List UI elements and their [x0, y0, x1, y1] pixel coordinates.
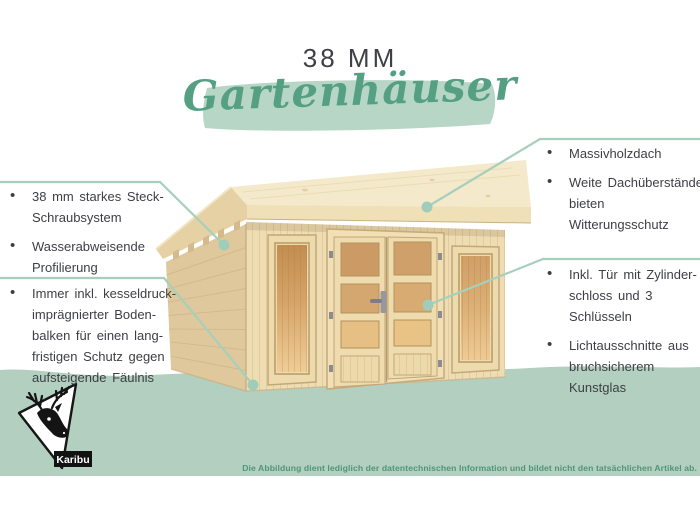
garden-house-illustration: [156, 160, 531, 391]
feature-list: 38 mm starkes Steck- Schraubsystem Wasse…: [8, 186, 180, 278]
callout-right-bottom: Inkl. Tür mit Zylinder- schloss und 3 Sc…: [545, 264, 700, 406]
callout-left-top: 38 mm starkes Steck- Schraubsystem Wasse…: [8, 186, 180, 286]
brand-label: Karibu: [56, 454, 89, 466]
feature-item: Lichtausschnitte aus bruchsicherem Kunst…: [545, 335, 700, 398]
feature-item: Inkl. Tür mit Zylinder- schloss und 3 Sc…: [545, 264, 700, 327]
feature-item: Massivholzdach: [545, 143, 700, 164]
callout-right-top: Massivholzdach Weite Dachüberstände biet…: [545, 143, 700, 243]
feature-item: Wasserabweisende Profilierung: [8, 236, 180, 278]
left-window: [268, 235, 316, 385]
feature-list: Immer inkl. kesseldruck- imprägnierter B…: [8, 283, 190, 388]
right-window: [452, 246, 499, 373]
feature-item: Weite Dachüberstände bieten Witterungssc…: [545, 172, 700, 235]
disclaimer-text: Die Abbildung dient lediglich der datent…: [242, 463, 697, 473]
feature-list: Massivholzdach Weite Dachüberstände biet…: [545, 143, 700, 235]
callout-left-bottom: Immer inkl. kesseldruck- imprägnierter B…: [8, 283, 190, 396]
feature-item: 38 mm starkes Steck- Schraubsystem: [8, 186, 180, 228]
feature-item: Immer inkl. kesseldruck- imprägnierter B…: [8, 283, 190, 388]
infographic-page: Karibu 38 MM Gartenhäuser 38 mm starkes …: [0, 0, 700, 525]
feature-list: Inkl. Tür mit Zylinder- schloss und 3 Sc…: [545, 264, 700, 398]
